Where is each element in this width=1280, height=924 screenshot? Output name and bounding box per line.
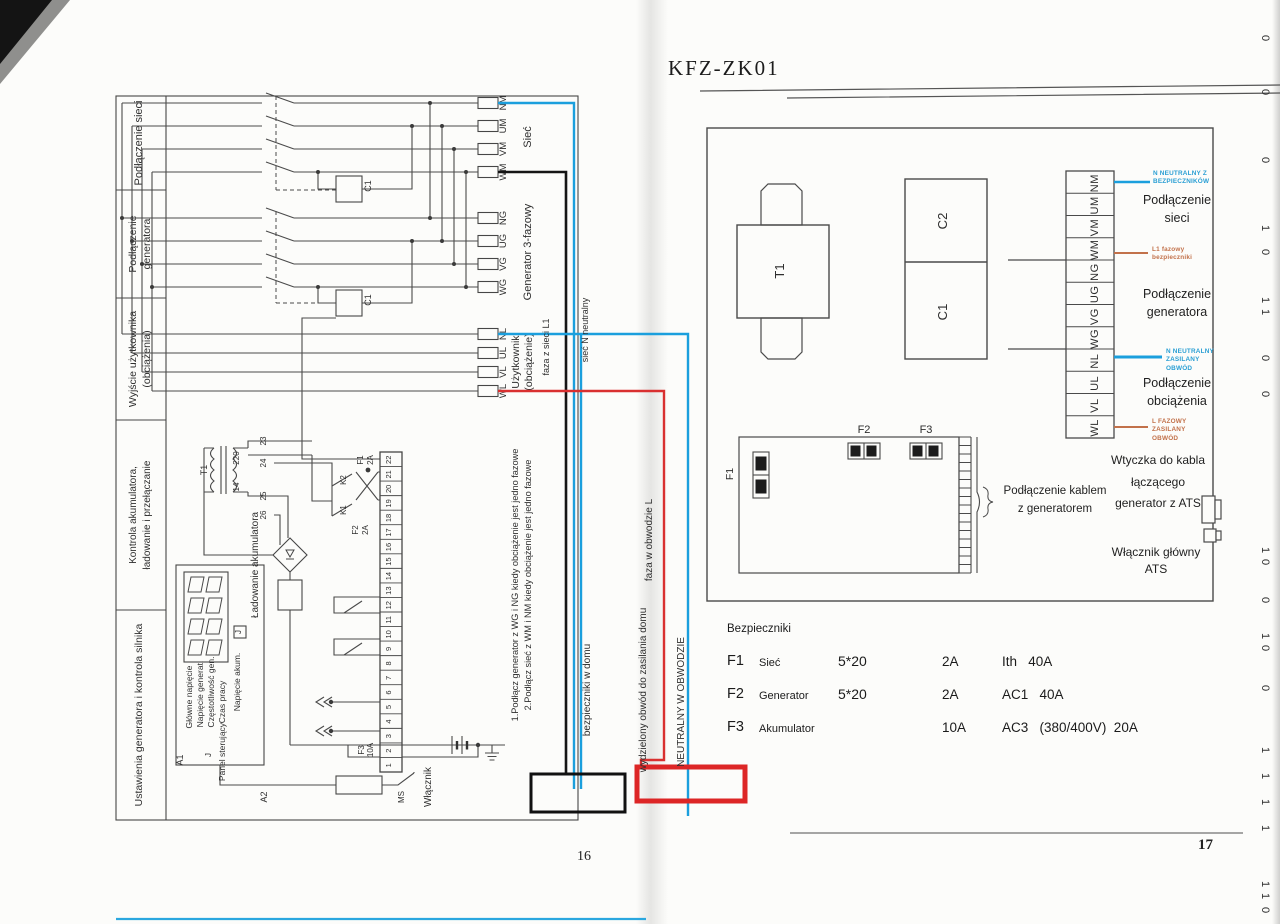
strip-number: 17 — [384, 528, 393, 536]
generator-cable-connector — [959, 437, 971, 573]
fuse-amp: 2A — [942, 654, 959, 669]
transformer-label: T1 — [772, 263, 787, 278]
terminal-cell-label: NL — [1089, 354, 1101, 369]
terminal-label: UM — [498, 119, 509, 134]
fuse-name: Sieć — [759, 657, 780, 669]
terminal-cell-label: WG — [1089, 329, 1101, 349]
fuse-spec: AC1 40A — [1002, 687, 1064, 702]
contactor-links — [276, 96, 336, 303]
panel-box-label: A1 — [175, 754, 185, 765]
strip-number: 15 — [384, 557, 393, 565]
binding-mark: 0 — [1259, 89, 1271, 95]
plug-label: Wtyczka do kabla łączącego generator z A… — [1108, 450, 1208, 515]
display-label: Napięcie generat. — [195, 661, 205, 728]
terminal-label: VG — [498, 257, 509, 271]
strip-number: 5 — [384, 705, 393, 709]
panel-box-label: A2 — [259, 791, 269, 802]
binding-mark: 1 — [1259, 297, 1271, 303]
strip-number: 6 — [384, 690, 393, 694]
fuse-id: F1 — [727, 653, 744, 669]
relay-label: K1 — [339, 505, 348, 515]
fuse-size: 5*20 — [838, 686, 867, 702]
terminal-label: NG — [498, 211, 509, 225]
group-caption-mains: Podłączenie sieci — [1122, 191, 1232, 227]
binding-mark: 1 — [1259, 893, 1271, 899]
strip-number: 12 — [384, 601, 393, 609]
page-title: KFZ-ZK01 — [668, 56, 780, 81]
annotation-phase-fused: L1 fazowy bezpieczniki — [1152, 246, 1222, 263]
strip-number: 8 — [384, 661, 393, 665]
annotation-red: wydzielony obwód do zasilania domu — [638, 608, 649, 774]
terminal-label: UL — [498, 347, 509, 359]
right-terminal-strip-cells: NMUMVMWMNGUGVGWGNLULVLWL — [1066, 174, 1114, 437]
display-digit-cell — [188, 598, 204, 613]
aux-terminal: 24 — [259, 458, 268, 467]
binding-mark: 1 — [1259, 747, 1271, 753]
fuse-size: 5*20 — [838, 653, 867, 669]
fuse-amp: 10A — [942, 720, 966, 735]
strip-number: 16 — [384, 543, 393, 551]
display-digit-cell — [206, 640, 222, 655]
display-digit-cell — [206, 577, 222, 592]
binding-mark: 1 — [1259, 309, 1271, 315]
terminal-cell-label: VG — [1089, 308, 1101, 325]
group-caption: Użytkownik — [510, 335, 522, 389]
fuse-name: Akumulator — [759, 723, 815, 735]
terminal-boxes — [478, 98, 498, 397]
terminal-cell-label: UM — [1089, 196, 1101, 214]
strip-number: 14 — [384, 572, 393, 580]
contactor-label: C1 — [363, 294, 373, 306]
charging-label: Ładowanie akumulatora — [250, 511, 261, 618]
terminal-cell-label: WM — [1089, 240, 1101, 261]
junction-dots — [120, 101, 480, 747]
strip-number: 7 — [384, 676, 393, 680]
binding-mark: 0 — [1259, 391, 1271, 397]
fuse-rating: 2A — [361, 524, 370, 534]
binding-hole-marks: 0001011001001001111110 — [1259, 35, 1271, 913]
terminal-cell-label: NM — [1089, 174, 1101, 192]
annotation-blue: sieć N neutralny — [580, 297, 590, 362]
display-label: Częstotliwość gen. — [206, 657, 216, 728]
binding-mark: 1 — [1259, 633, 1271, 639]
annotation-black: faza w obwodzie L — [644, 498, 655, 581]
page-number-left: 16 — [577, 849, 591, 865]
strip-number: 9 — [384, 647, 393, 651]
fuse-label: F1 — [724, 468, 736, 480]
fuse-rating: 10A — [366, 742, 375, 757]
annotation-black: bezpieczniki w domu — [582, 644, 593, 736]
main-switch-label: Włącznik główny ATS — [1100, 544, 1212, 579]
strip-number: 13 — [384, 587, 393, 595]
fuse-label: F2 — [351, 525, 360, 535]
strip-number: 2 — [384, 749, 393, 753]
binding-mark: 0 — [1259, 249, 1271, 255]
strip-number: 21 — [384, 470, 393, 478]
group-caption-generator: Podłączenie generatora — [1122, 285, 1232, 321]
fuse-label: F1 — [356, 455, 365, 465]
annotation-phase-load: L FAZOWY ZASILANY OBWÓD — [1152, 418, 1222, 443]
aux-terminal: 25 — [259, 491, 268, 500]
relay-label: K2 — [339, 475, 348, 485]
group-caption: Generator 3-fazowy — [522, 203, 534, 300]
terminal-cell-label: NG — [1089, 263, 1101, 281]
transformer-label: T1 — [199, 465, 209, 476]
strip-number: 10 — [384, 630, 393, 638]
terminal-cell-label: UG — [1089, 286, 1101, 304]
binding-mark: 0 — [1259, 907, 1271, 913]
terminal-cell-label: UL — [1089, 376, 1101, 391]
annotation-neutral-load: N NEUTRALNY ZASILANY OBWÓD — [1166, 348, 1236, 373]
fuse-label: F3 — [357, 745, 366, 755]
panel-control-label: Panel sterujący — [217, 722, 227, 781]
display-digit-cell — [206, 619, 222, 634]
strip-number: 1 — [384, 763, 393, 767]
ms-label: MS — [397, 791, 406, 803]
strip-number: 11 — [384, 616, 393, 624]
terminal-cell-label: WL — [1089, 419, 1101, 437]
binding-mark: 1 — [1259, 773, 1271, 779]
display-digit-cell — [188, 619, 204, 634]
display-label: Główne napięcie — [184, 665, 194, 728]
contactor-label: C1 — [935, 304, 950, 321]
annotation-neutral-fused: N NEUTRALNY Z BEZPIECZNIKÓW — [1153, 170, 1243, 187]
binding-mark: 1 — [1259, 825, 1271, 831]
binding-mark: 0 — [1259, 559, 1271, 565]
display-digit-cell — [188, 577, 204, 592]
sidebar-label: generatora — [141, 218, 153, 269]
fuse-label: F3 — [920, 424, 933, 436]
note-line: 2.Podłącz sieć z WM i NM kiedy obciążeni… — [523, 460, 533, 711]
scanned-manual-spread: { "colors": { "line": "#3f3f3f", "annota… — [0, 0, 1280, 924]
left-sidebar: Podłączenie sieci Podłączenie generatora… — [127, 101, 153, 807]
fuse-spec: Ith 40A — [1002, 654, 1052, 669]
right-component-labels: T1 C2 C1 F1 F2 F3 — [724, 213, 950, 480]
terminal-cell-label: VM — [1089, 219, 1101, 237]
terminal-label: WG — [498, 279, 509, 295]
binding-mark: 1 — [1259, 799, 1271, 805]
transformer-primary: 220 — [232, 451, 241, 465]
group-caption-load: Podłączenie obciążenia — [1122, 374, 1232, 410]
fuse-id: F3 — [727, 719, 744, 735]
switch-label: Włącznik — [423, 766, 434, 807]
fuse-amp: 2A — [942, 687, 959, 702]
strip-number: 4 — [384, 720, 393, 724]
fuse-table-heading: Bezpieczniki — [727, 623, 791, 635]
binding-mark: 0 — [1259, 35, 1271, 41]
binding-mark: 0 — [1259, 355, 1271, 361]
transformer-secondary: 14 — [232, 482, 241, 491]
sidebar-label: Ustawienia generatora i kontrola silnika — [133, 624, 145, 807]
terminal-cell-label: VL — [1089, 398, 1101, 412]
jumper-label: J — [204, 753, 213, 757]
fuse-rating: 2A — [366, 454, 375, 464]
strip-number: 3 — [384, 734, 393, 738]
sidebar-label: Podłączenie — [127, 215, 139, 272]
fuse-label: F2 — [858, 424, 871, 436]
display-label: Czas pracy — [217, 680, 227, 723]
left-wiring — [122, 93, 505, 785]
annotation-red: faza z sieci L1 — [541, 318, 551, 375]
strip-number: 19 — [384, 499, 393, 507]
strip-number: 18 — [384, 514, 393, 522]
battery-voltage-label: Napięcie akum. — [232, 653, 242, 712]
annotation-blue: NEUTRALNY W OBWODZIE — [676, 637, 687, 767]
jumper-label: J — [234, 630, 243, 634]
display-digit-cell — [206, 598, 222, 613]
binding-mark: 0 — [1259, 157, 1271, 163]
binding-mark: 1 — [1259, 547, 1271, 553]
strip-number: 22 — [384, 456, 393, 464]
page-number-right: 17 — [1198, 837, 1213, 854]
contactor-label: C2 — [935, 213, 950, 230]
sidebar-label: Kontrola akumulatora, — [128, 466, 139, 564]
contactor-label: C1 — [363, 180, 373, 192]
binding-mark: 0 — [1259, 597, 1271, 603]
sidebar-label: (obciążenia) — [141, 330, 153, 387]
binding-mark: 0 — [1259, 685, 1271, 691]
separated-circuit-box — [637, 767, 745, 801]
sidebar-label: Wyjście użytkownika — [127, 311, 139, 407]
seven-segment-display — [188, 577, 222, 655]
aux-terminal: 23 — [259, 436, 268, 445]
sidebar-label: ładowanie i przełączanie — [142, 460, 153, 569]
fuse-id: F2 — [727, 686, 744, 702]
terminal-label: VM — [498, 142, 509, 156]
terminal-label: VL — [498, 366, 509, 378]
binding-mark: 0 — [1259, 645, 1271, 651]
fuse-contacts — [756, 446, 938, 493]
fuse-name: Generator — [759, 690, 809, 702]
display-digit-cell — [188, 640, 204, 655]
binding-mark: 1 — [1259, 881, 1271, 887]
note-line: 1.Podłącz generator z WG i NG kiedy obci… — [510, 449, 520, 722]
numbered-terminal-strip: 22212019181716151413121110987654321 — [380, 456, 402, 768]
terminal-label: UG — [498, 234, 509, 248]
strip-number: 20 — [384, 485, 393, 493]
group-caption: (obciążenie) — [523, 333, 535, 390]
binding-mark: 1 — [1259, 225, 1271, 231]
sidebar-label: Podłączenie sieci — [133, 101, 145, 186]
schematic-line-art: Podłączenie sieci Podłączenie generatora… — [0, 0, 1280, 924]
fuse-spec: AC3 (380/400V) 20A — [1002, 720, 1138, 735]
group-caption: Sieć — [522, 126, 534, 148]
